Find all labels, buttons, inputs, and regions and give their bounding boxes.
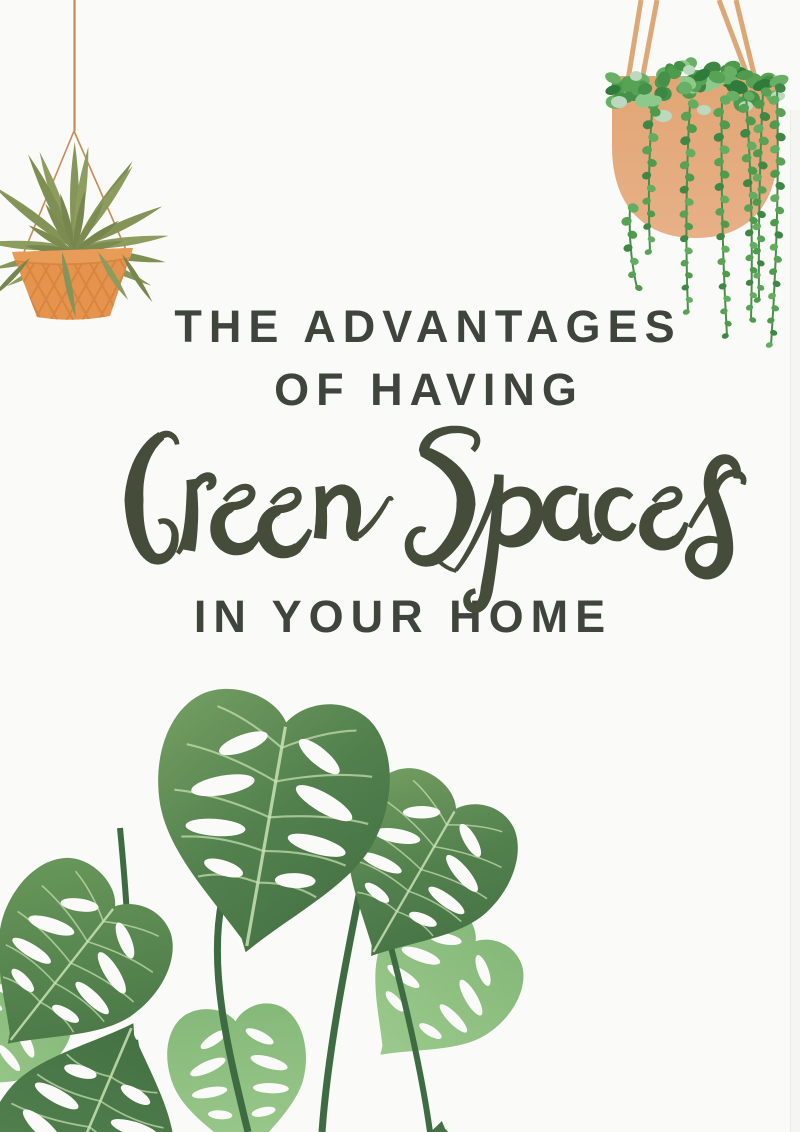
svg-text:IN YOUR HOME: IN YOUR HOME [194, 591, 612, 642]
svg-text:OF HAVING: OF HAVING [274, 364, 584, 415]
svg-text:THE ADVANTAGES: THE ADVANTAGES [174, 301, 681, 352]
